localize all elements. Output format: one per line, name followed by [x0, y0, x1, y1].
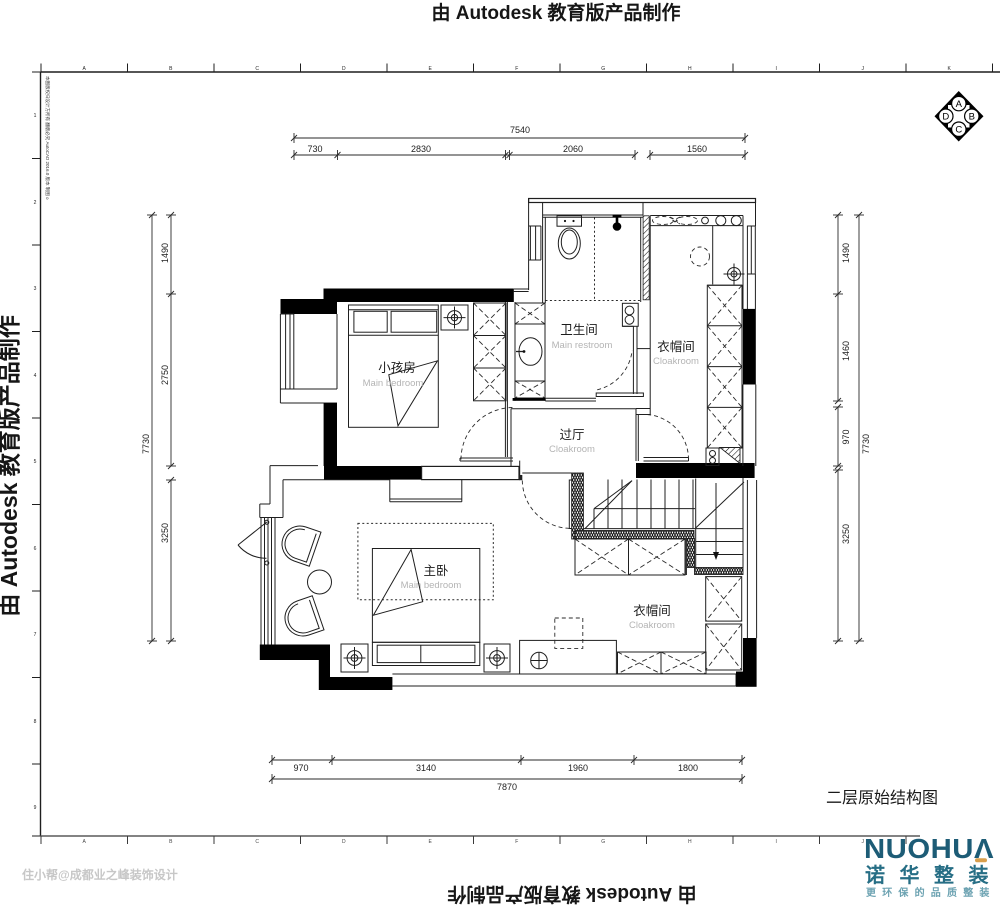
- svg-text:F: F: [515, 839, 518, 845]
- svg-text:衣帽间: 衣帽间: [633, 603, 671, 618]
- svg-text:衣帽间: 衣帽间: [657, 339, 695, 354]
- svg-text:过厅: 过厅: [559, 428, 584, 442]
- svg-text:D: D: [342, 66, 346, 72]
- svg-text:G: G: [601, 66, 605, 72]
- svg-text:1490: 1490: [160, 243, 170, 263]
- svg-text:D: D: [342, 839, 346, 845]
- svg-text:Main bedroom: Main bedroom: [401, 580, 462, 591]
- svg-text:小孩房: 小孩房: [378, 360, 416, 375]
- svg-text:NUOHUΛ: NUOHUΛ: [864, 833, 994, 864]
- svg-text:3250: 3250: [841, 524, 851, 544]
- svg-text:Main bedroom: Main bedroom: [363, 378, 424, 389]
- svg-text:二层原始结构图: 二层原始结构图: [826, 789, 938, 807]
- svg-text:由 Autodesk 教育版产品制作: 由 Autodesk 教育版产品制作: [431, 1, 680, 24]
- svg-text:970: 970: [293, 763, 308, 773]
- svg-text:1960: 1960: [568, 763, 588, 773]
- svg-text:Cloakroom: Cloakroom: [629, 620, 675, 631]
- svg-text:主卧: 主卧: [423, 564, 448, 578]
- svg-text:730: 730: [307, 144, 322, 154]
- svg-text:更环保的品质整装: 更环保的品质整装: [866, 886, 996, 899]
- svg-text:1800: 1800: [678, 763, 698, 773]
- svg-text:卫生间: 卫生间: [560, 323, 598, 337]
- svg-text:D: D: [942, 112, 949, 123]
- svg-text:F: F: [515, 66, 518, 72]
- svg-text:3250: 3250: [160, 523, 170, 543]
- svg-text:1: 1: [34, 113, 37, 119]
- svg-text:7730: 7730: [141, 434, 151, 454]
- svg-text:2750: 2750: [160, 365, 170, 385]
- svg-text:C: C: [255, 66, 259, 72]
- svg-text:7870: 7870: [497, 782, 517, 792]
- svg-text:970: 970: [841, 429, 851, 444]
- svg-text:1560: 1560: [687, 144, 707, 154]
- svg-text:2: 2: [34, 200, 37, 206]
- svg-text:1460: 1460: [841, 341, 851, 361]
- svg-text:7730: 7730: [861, 434, 871, 454]
- svg-text:H: H: [688, 839, 692, 845]
- svg-text:Main restroom: Main restroom: [552, 340, 613, 351]
- svg-text:H: H: [688, 66, 692, 72]
- svg-text:A: A: [956, 99, 963, 110]
- svg-text:9: 9: [34, 805, 37, 811]
- svg-text:6: 6: [34, 546, 37, 552]
- svg-text:2060: 2060: [563, 144, 583, 154]
- svg-text:3140: 3140: [416, 763, 436, 773]
- svg-text:Cloakroom: Cloakroom: [549, 444, 595, 455]
- svg-text:本图版权归设计方所有 翻版必究 AutoCAD 2016.0: 本图版权归设计方所有 翻版必究 AutoCAD 2016.0 版本 制图 o: [44, 76, 51, 200]
- svg-text:Cloakroom: Cloakroom: [653, 356, 699, 367]
- svg-text:3: 3: [34, 286, 37, 292]
- svg-text:诺华整装: 诺华整装: [865, 863, 1000, 887]
- svg-text:2830: 2830: [411, 144, 431, 154]
- svg-text:I: I: [776, 66, 777, 72]
- svg-text:C: C: [255, 839, 259, 845]
- svg-text:住小帮@成都业之峰装饰设计: 住小帮@成都业之峰装饰设计: [22, 867, 178, 882]
- svg-text:B: B: [969, 112, 975, 123]
- svg-text:G: G: [601, 839, 605, 845]
- svg-text:由 Autodesk 教育版产品制作: 由 Autodesk 教育版产品制作: [447, 883, 696, 905]
- svg-text:由 Autodesk 教育版产品制作: 由 Autodesk 教育版产品制作: [0, 315, 22, 617]
- svg-text:4: 4: [34, 373, 37, 379]
- svg-text:7540: 7540: [510, 125, 530, 135]
- svg-text:I: I: [776, 839, 777, 845]
- svg-text:8: 8: [34, 719, 37, 725]
- svg-text:1490: 1490: [841, 243, 851, 263]
- svg-text:5: 5: [34, 459, 37, 465]
- svg-text:C: C: [955, 125, 962, 136]
- svg-text:7: 7: [34, 632, 37, 638]
